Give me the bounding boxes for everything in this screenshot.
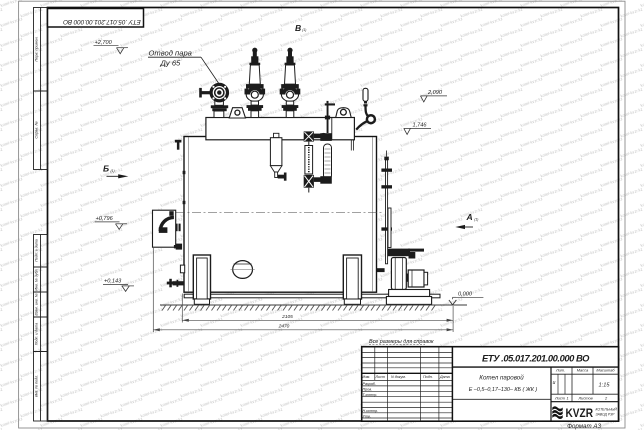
svg-text:Лит.: Лит. bbox=[555, 368, 565, 373]
svg-text:Подп. и дата: Подп. и дата bbox=[35, 323, 39, 346]
svg-text:Масса: Масса bbox=[577, 368, 589, 373]
svg-text:+2,700: +2,700 bbox=[95, 40, 113, 46]
svg-text:Е –0,5–0,17–130– КБ ( ЖК ): Е –0,5–0,17–130– КБ ( ЖК ) bbox=[469, 387, 538, 393]
svg-text:Пров.: Пров. bbox=[363, 388, 373, 392]
svg-text:2470: 2470 bbox=[278, 324, 290, 330]
svg-text:Изм.: Изм. bbox=[363, 375, 371, 379]
svg-text:Лист: Лист bbox=[554, 396, 566, 401]
svg-text:0,000: 0,000 bbox=[458, 292, 473, 298]
svg-text:Ду 65: Ду 65 bbox=[160, 59, 182, 68]
svg-text:KVZR: KVZR bbox=[566, 406, 594, 420]
svg-text:Инв. № подл.: Инв. № подл. bbox=[35, 375, 39, 397]
svg-text:Лист: Лист bbox=[375, 375, 386, 379]
svg-text:1: 1 bbox=[567, 396, 569, 401]
svg-text:Взам. инв. №: Взам. инв. № bbox=[35, 293, 39, 315]
svg-text:1:15: 1:15 bbox=[599, 382, 611, 388]
svg-text:(1): (1) bbox=[111, 169, 115, 173]
svg-text:Подп.: Подп. bbox=[423, 375, 433, 379]
svg-text:Справ. №: Справ. № bbox=[35, 121, 39, 138]
svg-text:2,090: 2,090 bbox=[427, 90, 443, 96]
svg-text:Котел паровой: Котел паровой bbox=[479, 375, 524, 382]
svg-text:Н.контр.: Н.контр. bbox=[363, 409, 379, 413]
svg-text:ЗАВОД РЗР: ЗАВОД РЗР bbox=[596, 413, 616, 417]
svg-text:ЕТУ .05.017.201.00.000 ВО: ЕТУ .05.017.201.00.000 ВО bbox=[482, 352, 590, 363]
svg-text:Утв.: Утв. bbox=[363, 414, 371, 418]
svg-text:Отвод пара: Отвод пара bbox=[149, 49, 192, 58]
svg-text:Б: Б bbox=[103, 164, 109, 174]
svg-text:Дата: Дата bbox=[439, 375, 450, 379]
svg-text:В: В bbox=[295, 23, 301, 33]
svg-text:Формат А3: Формат А3 bbox=[567, 423, 601, 430]
svg-text:Инв. № дубл.: Инв. № дубл. bbox=[35, 268, 39, 290]
svg-text:(1): (1) bbox=[302, 28, 306, 32]
svg-text:N докум.: N докум. bbox=[391, 375, 406, 379]
svg-text:Подп. и дата: Подп. и дата bbox=[35, 239, 39, 262]
svg-text:ЕТУ .05.017.201.00.000 ВО: ЕТУ .05.017.201.00.000 ВО bbox=[63, 18, 141, 25]
svg-text:2105: 2105 bbox=[281, 314, 293, 320]
svg-text:А: А bbox=[466, 212, 473, 222]
svg-text:Масштаб: Масштаб bbox=[596, 368, 615, 373]
svg-text:+0,143: +0,143 bbox=[104, 279, 122, 285]
svg-text:КОТЕЛЬНЫЙ: КОТЕЛЬНЫЙ bbox=[596, 408, 618, 412]
svg-text:+0,796: +0,796 bbox=[96, 216, 114, 222]
svg-text:1,746: 1,746 bbox=[413, 123, 428, 129]
svg-text:(1): (1) bbox=[474, 217, 478, 221]
svg-text:Перв. примен.: Перв. примен. bbox=[35, 36, 39, 61]
svg-text:Т.контр.: Т.контр. bbox=[363, 393, 378, 397]
svg-text:и: и bbox=[553, 380, 556, 386]
svg-text:Листов: Листов bbox=[578, 396, 593, 401]
svg-text:Разраб.: Разраб. bbox=[363, 382, 376, 386]
svg-text:Все размеры для справок: Все размеры для справок bbox=[369, 339, 434, 345]
